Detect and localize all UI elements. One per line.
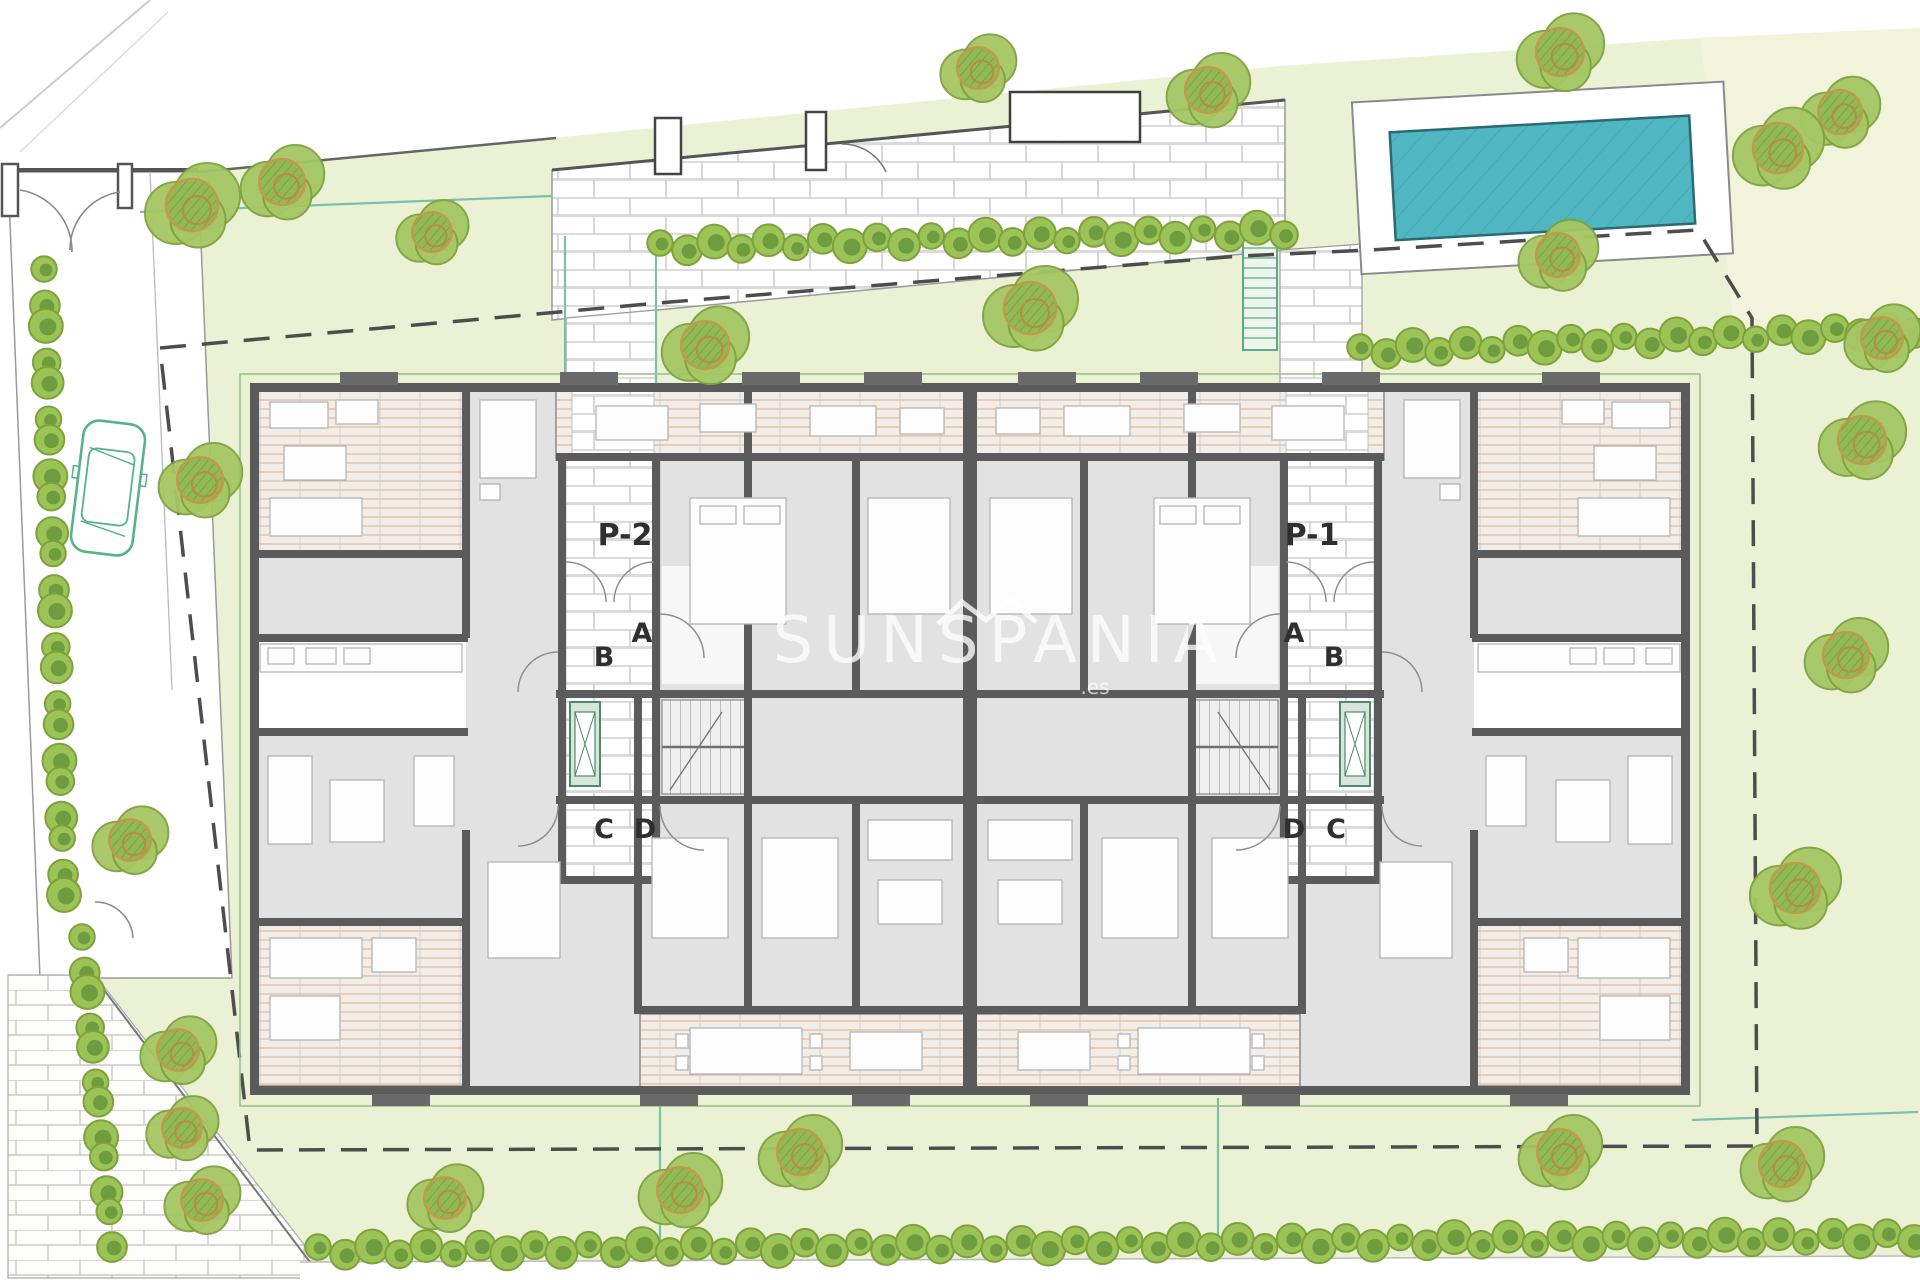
hedge-bush-core [44, 433, 59, 448]
hedge-bush-core [1583, 1236, 1600, 1253]
hedge-bush-core [394, 1248, 408, 1262]
hedge-bush-core [1422, 1239, 1437, 1254]
hedge-bush-core [366, 1239, 383, 1256]
hedge-bush-core [953, 237, 968, 252]
canopy [1010, 92, 1140, 142]
hedge-bush-core [1016, 1234, 1031, 1249]
hedge-bush-core [1089, 225, 1104, 240]
unit-label-b: B [1324, 642, 1345, 673]
gate-post [118, 164, 132, 208]
hedge-bush-core [1170, 231, 1186, 247]
hedge-bush-core [1773, 1227, 1789, 1243]
hedge-bush-core [979, 227, 996, 244]
hedge-bush-core [501, 1246, 518, 1263]
hedge-bush-core [719, 1246, 732, 1259]
hedge-bush-core [449, 1248, 462, 1261]
building-left-half [250, 372, 970, 1106]
hedge-bush-core [1381, 348, 1396, 363]
hedge-bush-core [1557, 1230, 1572, 1245]
hedge-bush-core [556, 1246, 572, 1262]
hedge-bush-core [1396, 1232, 1409, 1245]
hedge-bush-core [1008, 236, 1022, 250]
hedge-bush-core [1341, 1232, 1355, 1246]
unit-label-d: D [1283, 814, 1305, 845]
hedge-bush-core [105, 1206, 118, 1219]
hedge-bush-core [855, 1237, 868, 1250]
hedge-bush-core [1502, 1230, 1518, 1246]
unit-label-a: A [1284, 618, 1305, 649]
hedge-bush-core [1777, 324, 1792, 339]
hedge-bush-core [1670, 327, 1687, 344]
watermark-domain-suffix: .es [1080, 675, 1109, 699]
hedge-bush-core [53, 718, 68, 733]
hedge-bush-core [1063, 235, 1076, 248]
plot-line [0, 0, 150, 128]
hedge-bush-core [107, 1241, 122, 1256]
hedge-bush-core [1531, 1239, 1544, 1252]
hedge-bush-core [1250, 220, 1267, 237]
pier [655, 118, 681, 174]
hedge-bush-core [81, 984, 98, 1001]
unit-label-c: C [594, 814, 614, 845]
hedge-bush-core [763, 233, 779, 249]
hedge-bush-core [1801, 1237, 1814, 1250]
hedge-bush-core [961, 1234, 977, 1250]
hedge-bush-core [584, 1239, 597, 1252]
hedge-bush-core [340, 1248, 355, 1263]
hedge-bush-core [1751, 334, 1764, 347]
hedge-bush-core [40, 264, 53, 277]
hedge-bush-core [1042, 1241, 1059, 1258]
hedge-bush-core [1513, 334, 1528, 349]
hedge-bush-core [1434, 346, 1448, 360]
hedge-bush-core [1198, 224, 1211, 237]
garden-stair-frame [1243, 228, 1277, 350]
hedge-bush-core [1853, 1234, 1870, 1251]
hedge-bush-core [55, 811, 71, 827]
hedge-bush-core [55, 775, 69, 789]
hedge-bush-core [1151, 1241, 1166, 1256]
hedge-bush-core [1034, 226, 1050, 242]
hedge-bush-core [58, 833, 71, 846]
hedge-bush-core [1224, 230, 1239, 245]
hedge-bush-core [682, 244, 697, 259]
hedge-bush-core [826, 1244, 842, 1260]
hedge-bush-core [1232, 1232, 1248, 1248]
hedge-bush-core [1666, 1230, 1679, 1243]
hedge-bush-core [530, 1239, 544, 1253]
hedge-bush-core [46, 526, 62, 542]
hedge-bush-core [1747, 1237, 1761, 1251]
hedge-bush-core [1071, 1234, 1085, 1248]
hedge-bush-core [46, 491, 60, 505]
hedge-bush-core [1566, 333, 1580, 347]
hedge-bush-core [420, 1239, 436, 1255]
hedge-bush-core [42, 376, 58, 392]
hedge-bush-core [1286, 1232, 1301, 1247]
hedge-bush-core [93, 1095, 108, 1110]
hedge-bush-core [99, 1151, 113, 1165]
hedge-bush-core [1538, 340, 1555, 357]
hedge-bush-core [927, 231, 940, 244]
unit-label-p-2: P-2 [598, 518, 653, 553]
hedge-bush-core [708, 234, 725, 251]
hedge-bush-core [1619, 331, 1632, 344]
hedge-bush-core [1406, 337, 1423, 354]
plot-line [20, 12, 168, 152]
hedge-bush-core [881, 1244, 896, 1259]
hedge-bush-core [1692, 1236, 1707, 1251]
hedge-bush-core [1279, 229, 1293, 243]
building-floor-plan [240, 372, 1700, 1106]
hedge-bush-core [58, 888, 75, 905]
hedge-bush-core [1830, 322, 1844, 336]
hedge-bush-core [1698, 335, 1712, 349]
hedge-bush-core [1638, 1236, 1654, 1252]
gate-post [2, 164, 18, 216]
hedge-bush-core [1448, 1230, 1465, 1247]
building-right-half [970, 372, 1690, 1106]
hedge-bush-core [314, 1242, 327, 1255]
hedge-bush-core [1645, 337, 1660, 352]
hedge-bush-core [800, 1237, 814, 1251]
hedge-bush-core [665, 1246, 679, 1260]
unit-label-d: D [634, 814, 656, 845]
hedge-bush-core [691, 1237, 707, 1253]
lawn-pale [1700, 28, 1920, 342]
page-margin [300, 1262, 1920, 1280]
hedge-bush-core [1723, 325, 1739, 341]
hedge-bush-core [1177, 1232, 1194, 1249]
hedge-bush-core [990, 1244, 1003, 1257]
hedge-bush-core [48, 603, 65, 620]
hedge-bush-core [1827, 1227, 1842, 1242]
unit-label-c: C [1326, 814, 1346, 845]
watermark-text: SUNSPANIA [773, 604, 1228, 678]
hedge-bush-core [610, 1246, 625, 1261]
hedge-bush-core [1718, 1227, 1735, 1244]
hedge-bush-core [843, 239, 860, 256]
path-to-entry-p1 [1280, 244, 1362, 392]
hedge-bush-core [78, 932, 91, 945]
hedge-bush-core [771, 1243, 788, 1260]
site-plan-canvas: P-2P-1ABCDABDC SUNSPANIA .es [0, 0, 1920, 1280]
hedge-bush-core [1115, 232, 1132, 249]
hedge-bush-core [39, 318, 56, 335]
hedge-bush-core [1488, 344, 1501, 357]
hedge-bush-core [1367, 1239, 1383, 1255]
hedge-bush-core [636, 1237, 653, 1254]
unit-label-b: B [594, 642, 615, 673]
hedge-bush-core [1097, 1241, 1113, 1257]
hedge-bush-core [817, 232, 832, 247]
floor-plan-drawing: P-2P-1ABCDABDC SUNSPANIA .es [0, 0, 1920, 1280]
hedge-bush-core [1125, 1235, 1138, 1248]
hedge-bush-core [935, 1244, 949, 1258]
hedge-bush-core [736, 243, 750, 257]
pier [806, 112, 826, 170]
unit-label-a: A [632, 618, 653, 649]
hedge-bush-core [49, 548, 62, 561]
hedge-bush-core [872, 232, 886, 246]
hedge-bush-core [1143, 225, 1157, 239]
pool-garden-stair [1243, 228, 1277, 350]
hedge-bush-core [745, 1237, 760, 1252]
hedge-bush-core [1476, 1239, 1490, 1253]
hedge-bush-core [1460, 336, 1476, 352]
hedge-bush-core [1612, 1230, 1626, 1244]
hedge-bush-core [51, 660, 67, 676]
hedge-bush-core [87, 1040, 103, 1056]
hedge-bush-core [1312, 1239, 1329, 1256]
hedge-bush-core [1356, 342, 1369, 355]
hedge-bush-core [475, 1239, 490, 1254]
hedge-bush-core [1802, 330, 1819, 347]
hedge-bush-core [1591, 339, 1607, 355]
hedge-bush-core [791, 242, 804, 255]
hedge-bush-core [656, 238, 669, 251]
pool-water [1390, 116, 1696, 241]
hedge-bush-core [1206, 1241, 1220, 1255]
unit-label-p-1: P-1 [1285, 518, 1340, 553]
hedge-bush-core [907, 1234, 924, 1251]
hedge-bush-core [1260, 1241, 1273, 1254]
hedge-bush-core [898, 238, 914, 254]
elevator [570, 702, 600, 786]
hedge-bush-core [1882, 1227, 1896, 1241]
